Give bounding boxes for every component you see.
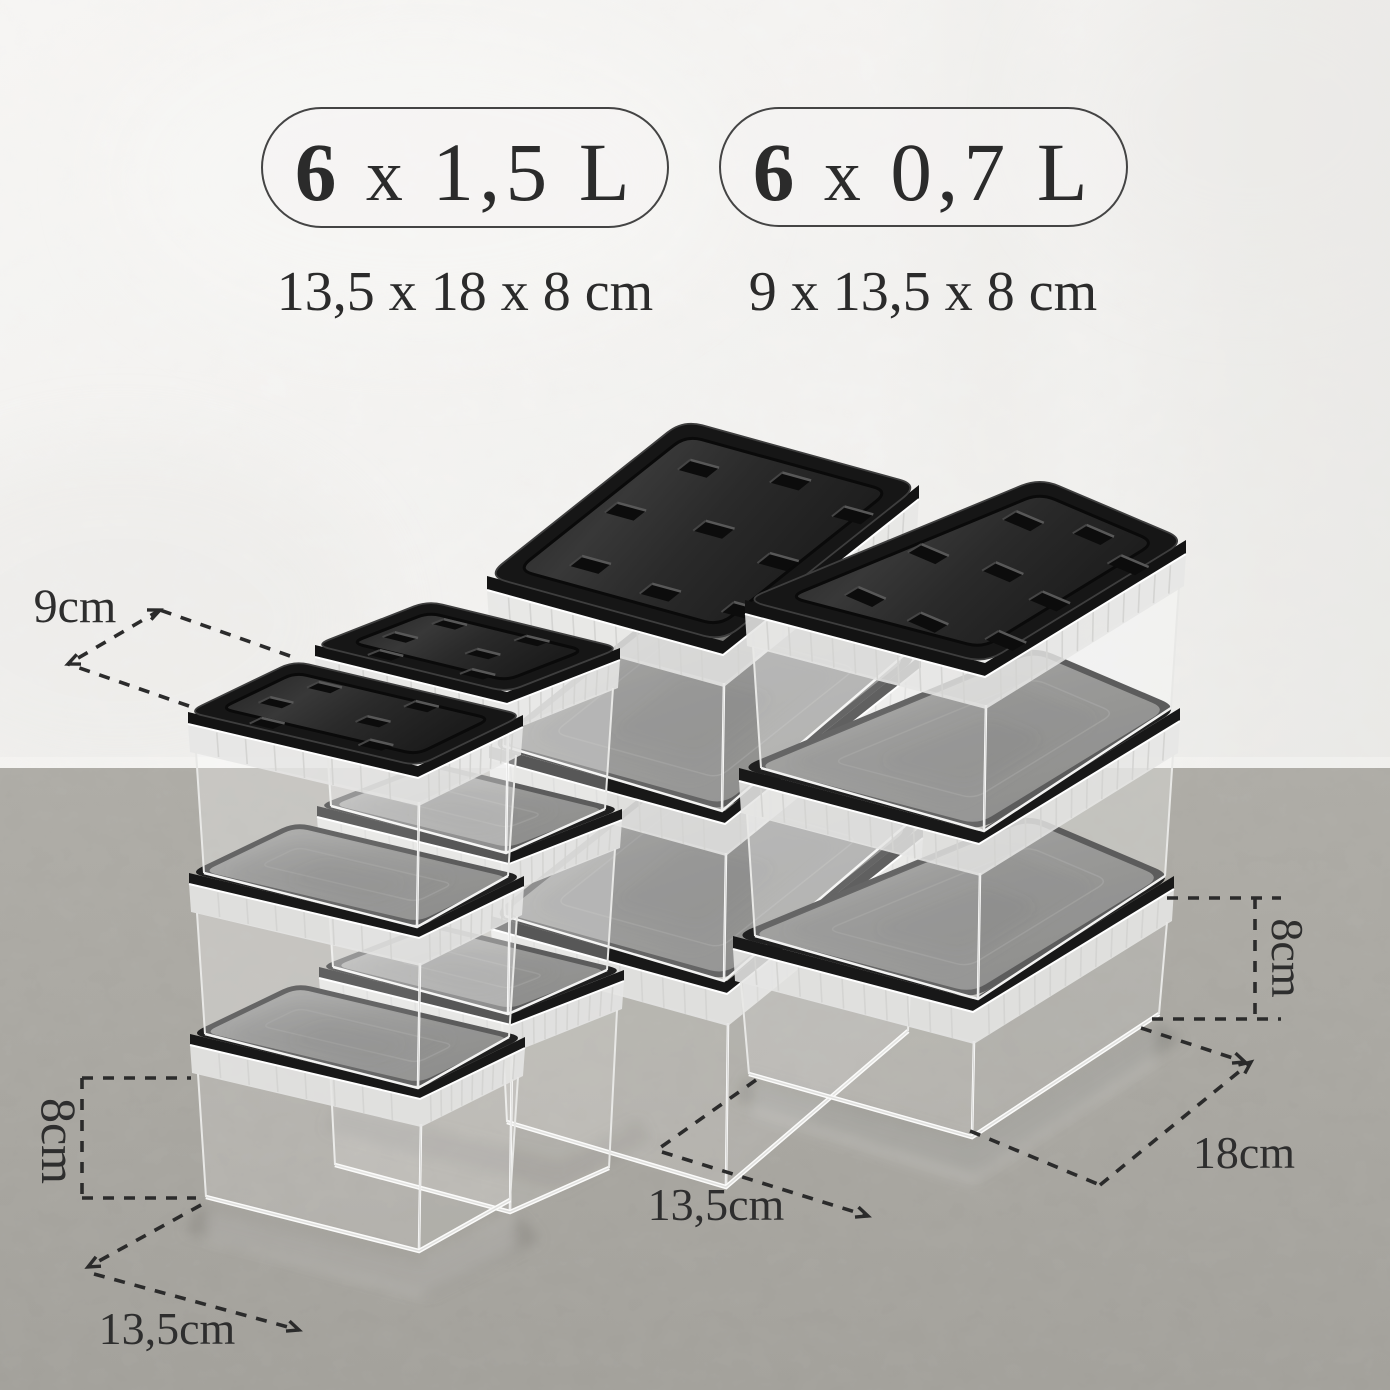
svg-text:8cm: 8cm xyxy=(31,1098,87,1184)
svg-text:13,5cm: 13,5cm xyxy=(99,1303,236,1354)
svg-text:6 x 1,5 L: 6 x 1,5 L xyxy=(295,126,635,218)
svg-text:13,5cm: 13,5cm xyxy=(648,1179,785,1230)
svg-text:18cm: 18cm xyxy=(1193,1127,1295,1178)
svg-text:6 x 0,7 L: 6 x 0,7 L xyxy=(753,126,1093,218)
svg-text:9 x 13,5 x 8 cm: 9 x 13,5 x 8 cm xyxy=(749,261,1097,323)
svg-text:9cm: 9cm xyxy=(34,580,117,633)
svg-text:13,5 x 18 x 8 cm: 13,5 x 18 x 8 cm xyxy=(277,261,653,323)
svg-text:8cm: 8cm xyxy=(1262,918,1313,997)
